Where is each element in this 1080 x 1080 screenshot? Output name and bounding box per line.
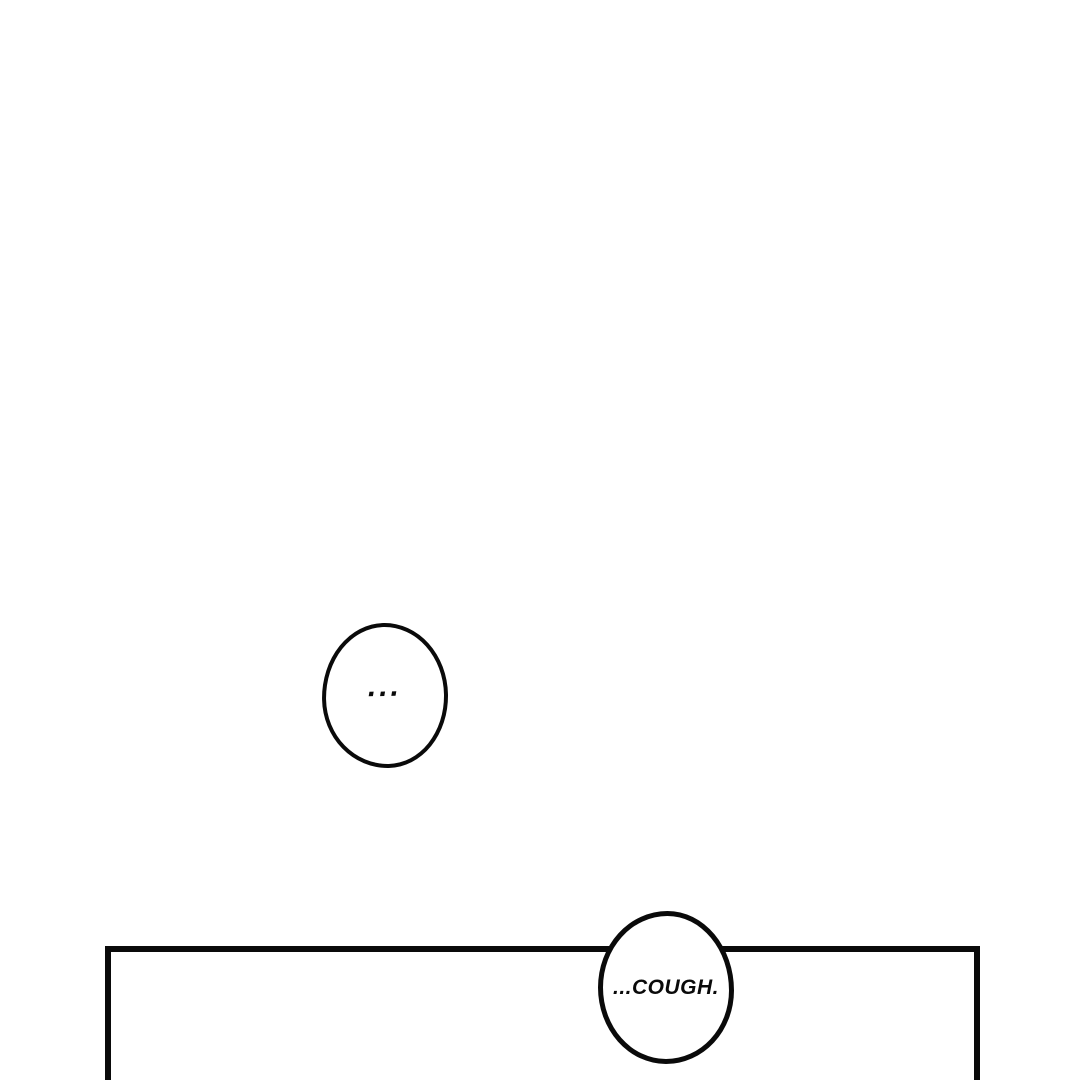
speech-bubble-ellipsis-text: ...	[368, 671, 403, 702]
speech-bubble-ellipsis: ...	[321, 622, 450, 769]
speech-bubble-cough: ...COUGH.	[598, 911, 734, 1064]
speech-bubble-cough-text: ...COUGH.	[613, 977, 719, 998]
panel-frame	[105, 946, 980, 1080]
comic-page: ... ...COUGH.	[0, 0, 1080, 1080]
